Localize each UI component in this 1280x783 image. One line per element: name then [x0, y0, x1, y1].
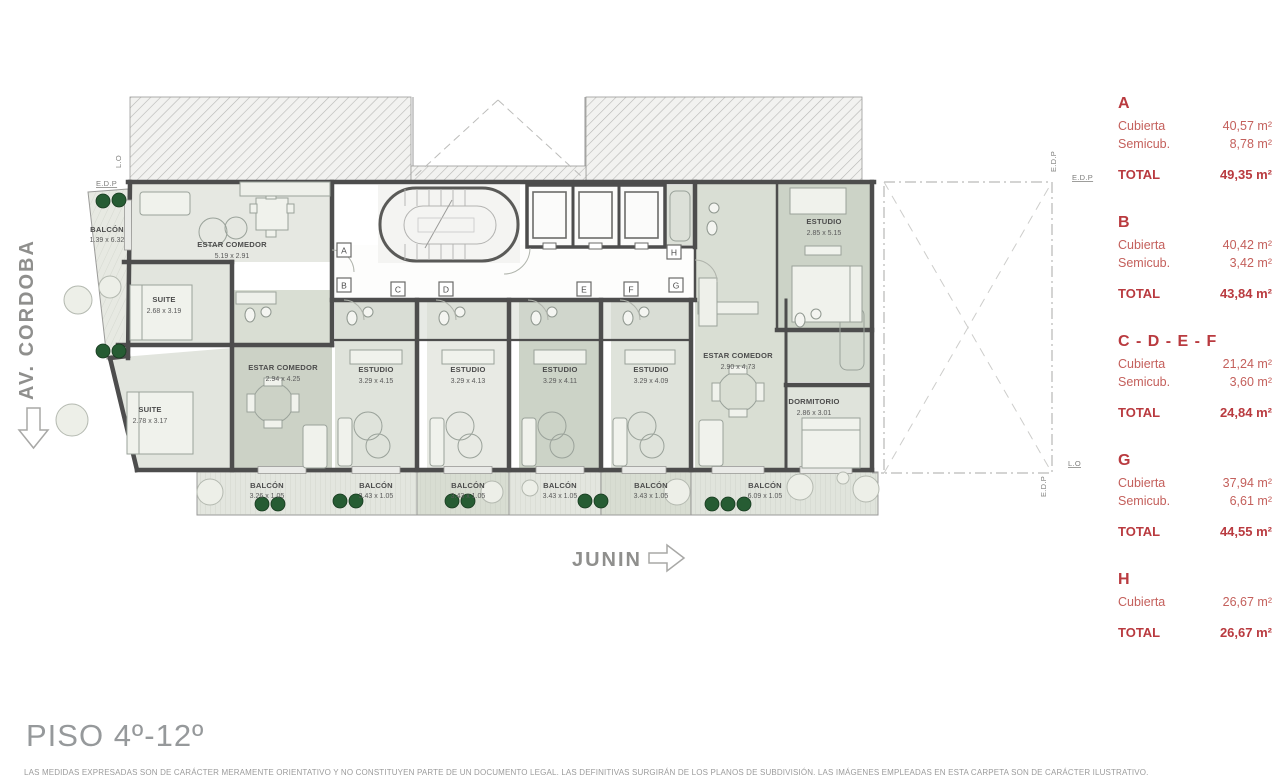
room-name: SUITE	[152, 295, 175, 304]
row-value: 8,78 m²	[1230, 135, 1272, 153]
room-name: ESTUDIO	[358, 365, 393, 374]
marker-g-letter: G	[673, 281, 680, 291]
total-label: TOTAL	[1118, 404, 1160, 422]
kitchen-b	[236, 292, 276, 304]
marker-a-letter: A	[341, 246, 347, 256]
stair-area	[378, 185, 520, 263]
room-dim: 3.43 x 1.05	[543, 493, 578, 500]
row-value: 40,57 m²	[1223, 117, 1272, 135]
room-name: ESTUDIO	[806, 217, 841, 226]
room-dim: 2.85 x 5.15	[807, 230, 842, 237]
room-name: BALCÓN	[748, 481, 782, 490]
legend-section-h: H Cubierta26,67 m² TOTAL26,67 m²	[1118, 571, 1272, 642]
chair-a-4	[287, 204, 294, 213]
total-value: 44,55 m²	[1220, 523, 1272, 541]
street-junin-label: JUNIN	[572, 549, 642, 571]
marker-b-letter: B	[341, 281, 347, 291]
toilet-d	[439, 311, 449, 325]
total-label: TOTAL	[1118, 166, 1160, 184]
legend-row: Semicub.8,78 m²	[1118, 135, 1272, 153]
legend-panel: A Cubierta40,57 m² Semicub.8,78 m² TOTAL…	[1118, 95, 1272, 672]
room-dim: 2.94 x 4.25	[266, 376, 301, 383]
room-name: ESTAR COMEDOR	[248, 363, 318, 372]
elevator-door-3	[635, 243, 648, 249]
marker-c: C	[391, 282, 405, 296]
window-f	[622, 467, 666, 474]
legend-total-row: TOTAL49,35 m²	[1118, 166, 1272, 184]
room-name: ESTAR COMEDOR	[197, 240, 267, 249]
sink-c	[363, 307, 373, 317]
room-dim: 3.29 x 4.15	[359, 378, 394, 385]
sofa-c	[338, 418, 352, 466]
elevator-door-1	[543, 243, 556, 249]
floor-plan: A B C D E F G H BALCÓN 1.39 x 6.32 ESTAR…	[0, 0, 1280, 783]
room-name: SUITE	[138, 405, 161, 414]
table-a	[256, 198, 288, 230]
marker-h: H	[667, 245, 681, 259]
marker-c-letter: C	[395, 285, 401, 295]
edp-label-left: E.D.P	[96, 179, 117, 188]
legend-total-row: TOTAL44,55 m²	[1118, 523, 1272, 541]
edp-label-right: E.D.P	[1072, 173, 1093, 182]
room-dim: 3.43 x 1.05	[634, 493, 669, 500]
chair-g-2	[729, 409, 747, 417]
row-value: 26,67 m²	[1223, 593, 1272, 611]
window-e	[536, 467, 584, 474]
row-label: Semicub.	[1118, 492, 1170, 510]
row-value: 37,94 m²	[1223, 474, 1272, 492]
lot-dashed-area	[884, 182, 1052, 473]
sofa-e	[522, 418, 536, 466]
street-cordoba-label: AV. CORDOBA	[16, 239, 38, 400]
room-name: ESTUDIO	[450, 365, 485, 374]
elevator-bank	[527, 185, 665, 249]
legend-section-a: A Cubierta40,57 m² Semicub.8,78 m² TOTAL…	[1118, 95, 1272, 184]
sofa-d	[430, 418, 444, 466]
roof-dashed-right	[498, 100, 581, 176]
room-name: ESTUDIO	[633, 365, 668, 374]
row-value: 21,24 m²	[1223, 355, 1272, 373]
window-c	[352, 467, 400, 474]
total-value: 24,84 m²	[1220, 404, 1272, 422]
disclaimer-text: LAS MEDIDAS EXPRESADAS SON DE CARÁCTER M…	[24, 768, 1034, 777]
arrow-down-icon	[19, 408, 48, 448]
total-label: TOTAL	[1118, 523, 1160, 541]
room-dim: 6.09 x 1.05	[748, 493, 783, 500]
row-value: 3,60 m²	[1230, 373, 1272, 391]
marker-g: G	[669, 278, 683, 292]
legend-total-row: TOTAL43,84 m²	[1118, 285, 1272, 303]
row-value: 3,42 m²	[1230, 254, 1272, 272]
legend-section-g: G Cubierta37,94 m² Semicub.6,61 m² TOTAL…	[1118, 452, 1272, 541]
chair-g-3	[712, 383, 720, 401]
legend-row: Cubierta40,57 m²	[1118, 117, 1272, 135]
row-label: Cubierta	[1118, 355, 1165, 373]
kitchen-a	[240, 182, 330, 196]
total-value: 49,35 m²	[1220, 166, 1272, 184]
toilet-e	[531, 311, 541, 325]
row-label: Cubierta	[1118, 117, 1165, 135]
room-dim: 3.43 x 1.05	[359, 493, 394, 500]
sofa-a	[140, 192, 190, 215]
desk-d	[442, 350, 494, 364]
page-title: PISO 4º-12º	[26, 718, 204, 754]
window-d	[444, 467, 492, 474]
arrow-right-icon	[649, 545, 684, 571]
legend-total-row: TOTAL26,67 m²	[1118, 624, 1272, 642]
marker-h-letter: H	[671, 248, 677, 258]
sink-d	[455, 307, 465, 317]
row-label: Cubierta	[1118, 236, 1165, 254]
sink-f	[639, 307, 649, 317]
marker-a: A	[337, 243, 351, 257]
kitchen-h	[699, 278, 717, 326]
marker-e-letter: E	[581, 285, 587, 295]
total-value: 26,67 m²	[1220, 624, 1272, 642]
legend-row: Semicub.3,60 m²	[1118, 373, 1272, 391]
desk-c	[350, 350, 402, 364]
sofa-g	[699, 420, 723, 466]
room-dim: 2.90 x 4.73	[721, 364, 756, 371]
marker-e: E	[577, 282, 591, 296]
marker-f: F	[624, 282, 638, 296]
row-label: Semicub.	[1118, 254, 1170, 272]
dresser-h	[805, 246, 841, 255]
row-label: Cubierta	[1118, 593, 1165, 611]
room-name: BALCÓN	[634, 481, 668, 490]
desk-f	[625, 350, 675, 364]
desk-e	[534, 350, 586, 364]
legend-total-row: TOTAL24,84 m²	[1118, 404, 1272, 422]
edp-label-bottom-vert: E.D.P	[1039, 476, 1048, 497]
neighbor-block-left	[130, 97, 411, 181]
window-a-balcony	[125, 200, 132, 250]
toilet-g	[795, 313, 805, 327]
room-dim: 3.26 x 1.05	[250, 493, 285, 500]
total-value: 43,84 m²	[1220, 285, 1272, 303]
toilet-f	[623, 311, 633, 325]
legend-row: Cubierta21,24 m²	[1118, 355, 1272, 373]
marker-d: D	[439, 282, 453, 296]
room-dim: 1.39 x 6.32	[90, 237, 125, 244]
lo-label-right: L.O	[1068, 459, 1081, 468]
marker-f-letter: F	[628, 285, 633, 295]
sofa-f	[613, 418, 627, 466]
room-name: ESTUDIO	[542, 365, 577, 374]
chair-b-4	[291, 394, 299, 412]
legend-row: Cubierta40,42 m²	[1118, 236, 1272, 254]
window-b	[258, 467, 306, 474]
room-name: BALCÓN	[90, 225, 124, 234]
marker-d-letter: D	[443, 285, 449, 295]
sink-g	[811, 309, 821, 319]
unit-name: B	[1118, 214, 1272, 232]
room-dim: 2.86 x 3.01	[797, 410, 832, 417]
room-dim: 3.29 x 4.09	[634, 378, 669, 385]
studio-bath-strip	[335, 300, 691, 340]
chair-a-3	[250, 204, 257, 213]
chair-b-3	[247, 394, 255, 412]
room-dim: 5.19 x 2.91	[215, 253, 250, 260]
room-dim: 3.29 x 4.13	[451, 378, 486, 385]
room-dim: 3.43 x 1.05	[451, 493, 486, 500]
legend-row: Semicub.3,42 m²	[1118, 254, 1272, 272]
unit-name: A	[1118, 95, 1272, 113]
neighbor-buildings	[130, 97, 862, 181]
legend-section-b: B Cubierta40,42 m² Semicub.3,42 m² TOTAL…	[1118, 214, 1272, 303]
row-value: 6,61 m²	[1230, 492, 1272, 510]
legend-row: Cubierta26,67 m²	[1118, 593, 1272, 611]
unit-name: H	[1118, 571, 1272, 589]
room-dim: 2.68 x 3.19	[147, 308, 182, 315]
toilet-c	[347, 311, 357, 325]
bed-g	[802, 418, 860, 468]
sofa-b	[303, 425, 327, 468]
sofa-h	[790, 188, 846, 214]
chair-g-4	[756, 383, 764, 401]
row-label: Semicub.	[1118, 135, 1170, 153]
room-dim: 3.29 x 4.11	[543, 378, 577, 385]
toilet-h	[707, 221, 717, 235]
neighbor-block-right	[586, 97, 862, 181]
sink-e	[547, 307, 557, 317]
sink-h	[709, 203, 719, 213]
total-label: TOTAL	[1118, 285, 1160, 303]
room-name: ESTAR COMEDOR	[703, 351, 773, 360]
roof-dashed-left	[415, 100, 498, 176]
toilet-b	[245, 308, 255, 322]
neighbor-strip-center	[411, 166, 586, 181]
unit-name: G	[1118, 452, 1272, 470]
unit-name: C - D - E - F	[1118, 333, 1272, 351]
rooms	[110, 182, 872, 470]
chair-b-2	[264, 420, 282, 428]
row-label: Cubierta	[1118, 474, 1165, 492]
room-name: BALCÓN	[250, 481, 284, 490]
room-dim: 2.78 x 3.17	[133, 418, 168, 425]
row-label: Semicub.	[1118, 373, 1170, 391]
legend-row: Semicub.6,61 m²	[1118, 492, 1272, 510]
room-name: BALCÓN	[543, 481, 577, 490]
edp-label-right-vert: E.D.P	[1049, 151, 1058, 172]
marker-b: B	[337, 278, 351, 292]
lo-label-left: L.O	[114, 155, 123, 168]
legend-section-cdef: C - D - E - F Cubierta21,24 m² Semicub.3…	[1118, 333, 1272, 422]
room-name: BALCÓN	[451, 481, 485, 490]
elevator-door-2	[589, 243, 602, 249]
total-label: TOTAL	[1118, 624, 1160, 642]
window-g	[712, 467, 764, 474]
balcony-left-texture	[88, 189, 128, 359]
chair-a-6	[266, 230, 276, 237]
legend-row: Cubierta37,94 m²	[1118, 474, 1272, 492]
room-name: BALCÓN	[359, 481, 393, 490]
row-value: 40,42 m²	[1223, 236, 1272, 254]
sink-b	[261, 307, 271, 317]
room-name: DORMITORIO	[788, 397, 839, 406]
